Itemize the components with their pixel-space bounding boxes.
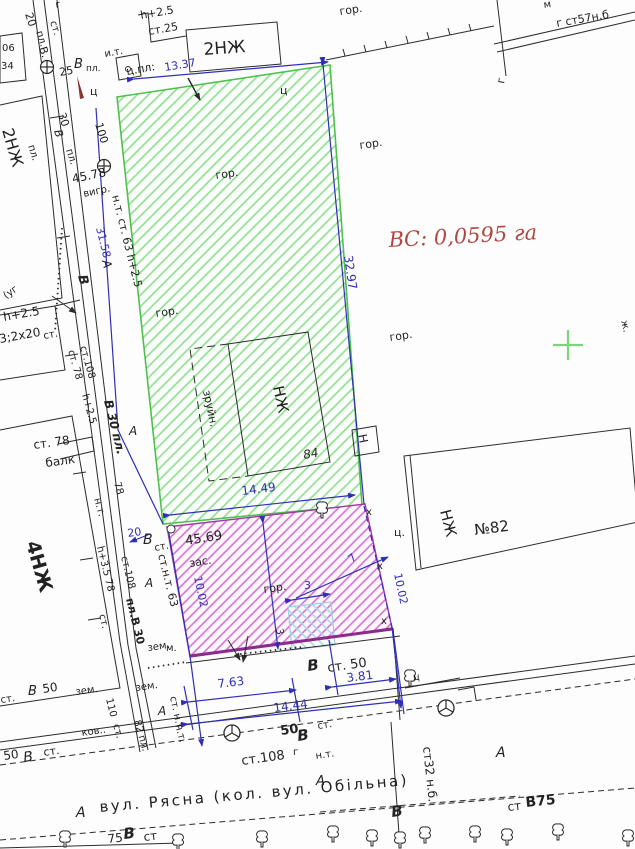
c-mark: ц: [90, 85, 98, 98]
x-mark: х: [381, 616, 387, 627]
x-mark: х: [366, 507, 372, 518]
building-number-84: 84: [302, 446, 319, 462]
a-mark: А: [315, 774, 325, 789]
pl-note: пл.: [86, 64, 101, 74]
building-label-2nzh-top: 2НЖ: [203, 37, 246, 60]
st-note: ст.: [43, 744, 61, 759]
dim-3-value: 3: [304, 579, 311, 592]
v-note: В: [74, 57, 83, 72]
a-mark: А: [128, 424, 137, 438]
v-mark: В: [28, 684, 37, 699]
cadastral-map: гор. h+2.5 ст.25 2НЖ и.т. ц.пл: 13.37 м …: [0, 0, 635, 849]
st-note: ст.: [317, 719, 333, 732]
dim-75: 75: [107, 830, 124, 846]
dim-20: 20: [127, 525, 143, 540]
c-mark: ц.: [394, 526, 405, 539]
g-note: г: [293, 747, 298, 758]
a-mark: А: [144, 576, 153, 590]
benchmark-icon: [41, 61, 54, 74]
well-icon: [224, 725, 240, 741]
c-mark: ц: [280, 84, 288, 97]
x-mark: х: [377, 561, 383, 572]
pole-note: ст: [507, 799, 522, 814]
st-note: ст: [143, 829, 158, 844]
v-mark: В: [123, 824, 136, 843]
m-note: м: [543, 0, 552, 11]
dim-50: 50: [2, 747, 19, 763]
a-mark: А: [157, 704, 166, 718]
dim-25: 25: [58, 64, 74, 79]
m-note: м.: [166, 643, 177, 654]
a-mark: А: [495, 745, 506, 761]
parcel-number: 34: [1, 61, 14, 72]
a-mark: А: [75, 805, 86, 821]
map-canvas: гор. h+2.5 ст.25 2НЖ и.т. ц.пл: 13.37 м …: [0, 0, 635, 849]
well-icon: [438, 700, 454, 716]
c-mark: ц: [413, 672, 420, 683]
v-mark: В: [143, 532, 153, 548]
parcel-number: 06: [2, 43, 15, 54]
st-note: ст.: [0, 693, 16, 706]
dim-50: 50: [41, 680, 58, 696]
pole-note: В75: [525, 792, 557, 811]
